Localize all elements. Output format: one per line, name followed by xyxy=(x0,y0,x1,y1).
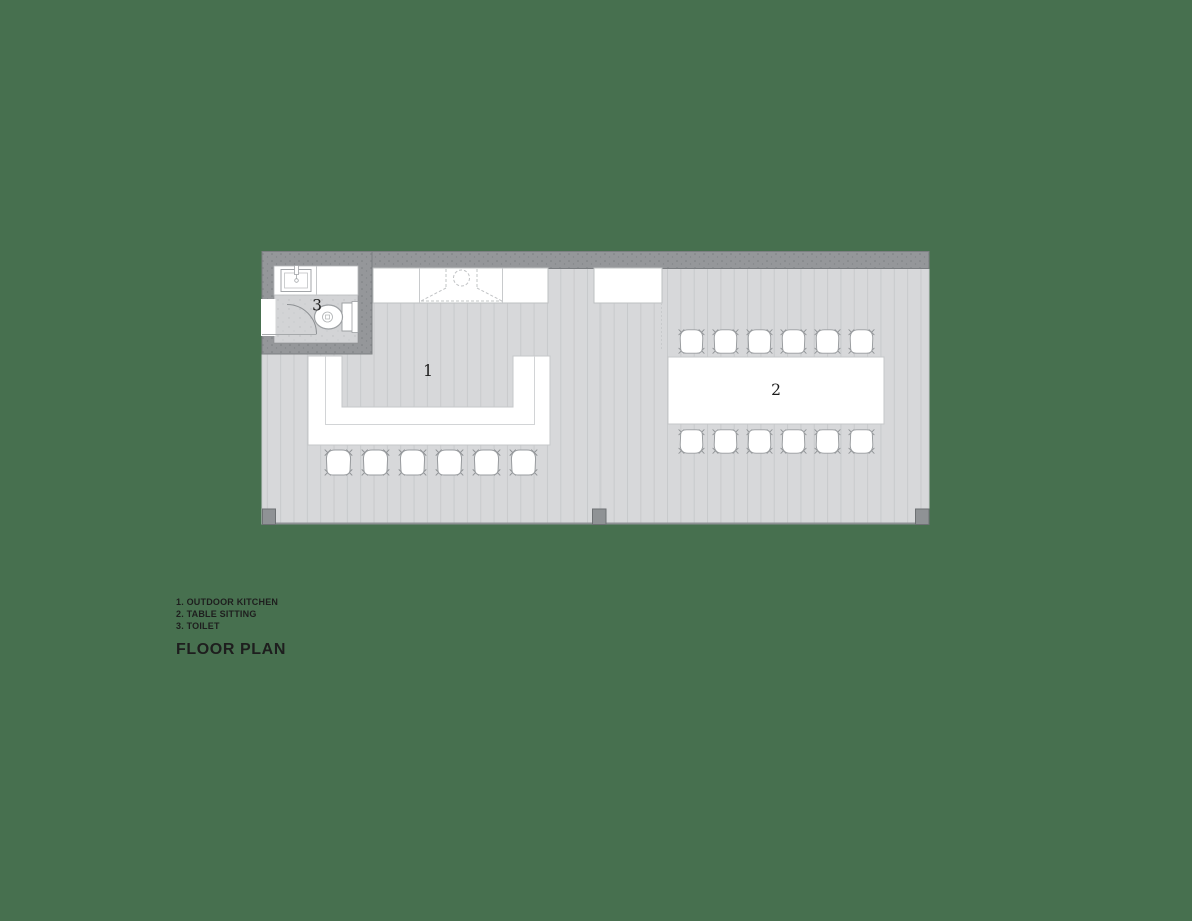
cistern-unit xyxy=(352,302,358,333)
sink xyxy=(281,266,311,292)
dining-chair xyxy=(815,429,841,453)
dining-chair xyxy=(713,429,739,453)
dining-chair xyxy=(747,429,773,453)
door-opening xyxy=(261,299,276,336)
legend: 1. OUTDOOR KITCHEN 2. TABLE SITTING 3. T… xyxy=(176,596,278,633)
dining-chair xyxy=(849,329,875,353)
plan-title: FLOOR PLAN xyxy=(176,641,286,659)
floor-plan-drawing: 1 2 3 xyxy=(0,0,1192,921)
dining-chair xyxy=(815,329,841,353)
legend-item-outdoor-kitchen: 1. OUTDOOR KITCHEN xyxy=(176,596,278,608)
room-label-toilet: 3 xyxy=(312,297,322,315)
room-label-outdoor-kitchen: 1 xyxy=(423,362,433,380)
bar-stool xyxy=(362,450,390,476)
bar-stool xyxy=(399,450,427,476)
legend-item-table-sitting: 2. TABLE SITTING xyxy=(176,608,278,620)
bar-stool xyxy=(510,450,538,476)
faucet-icon xyxy=(295,266,299,283)
dining-chair xyxy=(747,329,773,353)
dining-chair xyxy=(781,329,807,353)
bar-stool xyxy=(473,450,501,476)
legend-item-toilet: 3. TOILET xyxy=(176,620,278,632)
kitchen-counter xyxy=(373,268,548,303)
room-label-table-sitting: 2 xyxy=(771,381,781,399)
structural-post xyxy=(263,509,276,525)
dining-chair xyxy=(849,429,875,453)
structural-post xyxy=(593,509,607,525)
dining-chair xyxy=(781,429,807,453)
cabinet-top xyxy=(594,268,662,303)
structural-post xyxy=(916,509,930,525)
dining-chair xyxy=(679,329,705,353)
bar-stool xyxy=(325,450,353,476)
dining-chair xyxy=(713,329,739,353)
counter-top xyxy=(373,268,548,303)
bar-stool xyxy=(436,450,464,476)
dining-chair xyxy=(679,429,705,453)
floor-plan-sheet: 1 2 3 1. OUTDOOR KITCHEN 2. TABLE SITTIN… xyxy=(0,0,1192,921)
